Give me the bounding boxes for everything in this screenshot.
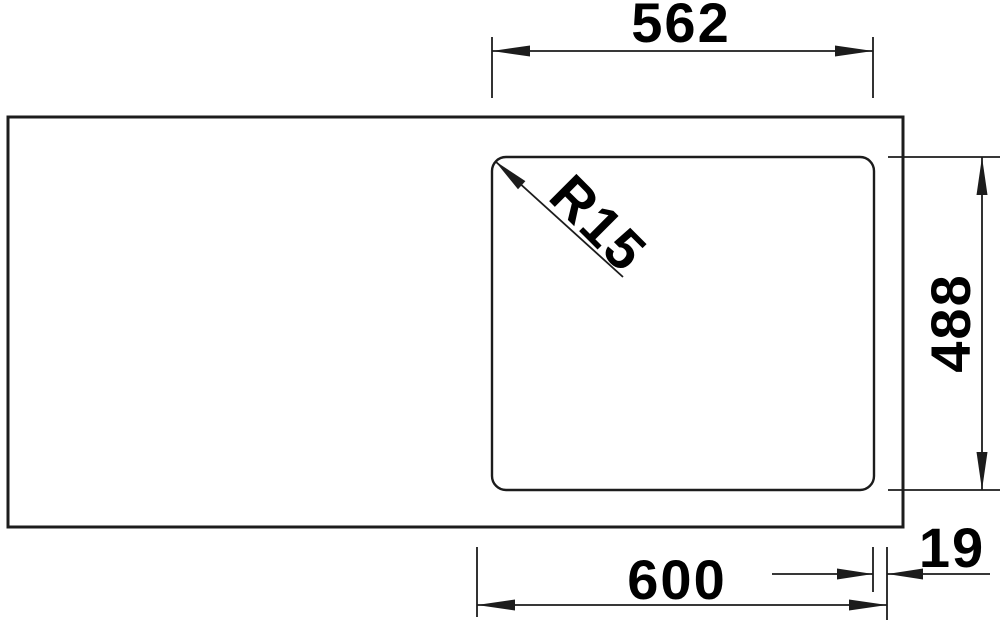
arrow-left-icon	[887, 569, 923, 580]
dim-corner-radius: R15	[495, 161, 660, 284]
arrow-up-icon	[977, 157, 988, 195]
sink-dimension-drawing-canvas: 562 R15 488 600	[0, 0, 1000, 625]
dim-cutout-width-top: 562	[492, 0, 873, 98]
arrow-right-icon	[849, 600, 887, 611]
arrow-right-icon	[835, 46, 873, 57]
arrow-left-icon	[492, 46, 530, 57]
arrow-down-icon	[977, 452, 988, 490]
dim-label-cutout-depth-right: 488	[919, 273, 982, 372]
arrow-left-icon	[477, 600, 515, 611]
dim-label-cabinet-width-bottom: 600	[627, 548, 726, 611]
dim-cabinet-width-bottom: 600	[477, 547, 887, 620]
dim-label-corner-radius: R15	[538, 162, 659, 283]
worktop-outline	[8, 117, 903, 527]
dim-label-edge-offset-right: 19	[919, 516, 985, 579]
dim-label-cutout-width-top: 562	[631, 0, 730, 54]
arrow-up-left-icon	[495, 161, 525, 189]
arrow-right-icon	[837, 569, 873, 580]
dimension-drawing: 562 R15 488 600	[0, 0, 1000, 625]
dim-cutout-depth-right: 488	[888, 157, 1000, 490]
